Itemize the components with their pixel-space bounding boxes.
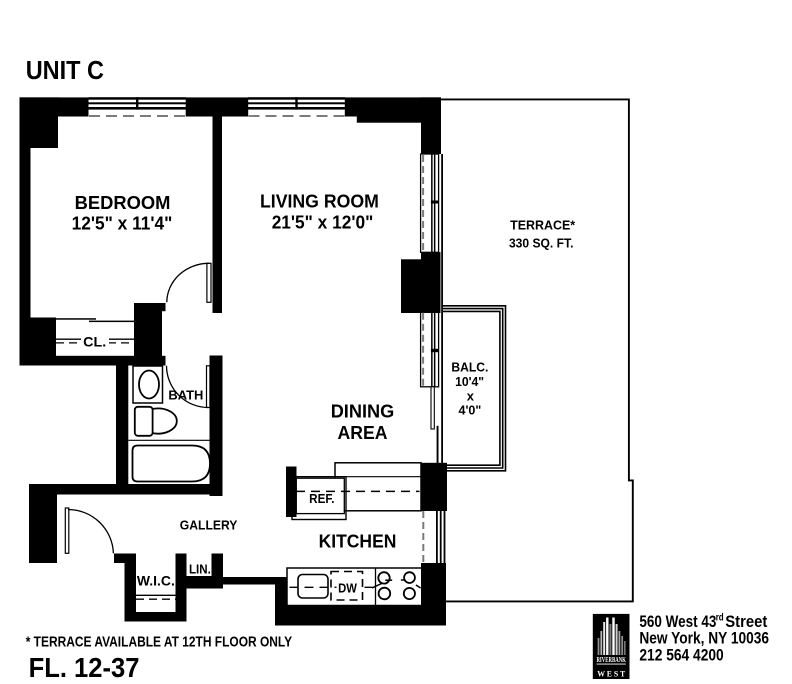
svg-text:FL. 12-37: FL. 12-37 — [29, 652, 140, 683]
svg-text:AREA: AREA — [338, 423, 388, 443]
svg-text:W E S T: W E S T — [597, 669, 625, 678]
svg-text:10'4": 10'4" — [455, 374, 484, 389]
svg-text:REF.: REF. — [309, 492, 334, 506]
svg-text:KITCHEN: KITCHEN — [319, 532, 397, 552]
svg-text:4'0": 4'0" — [459, 403, 482, 418]
svg-text:CL.: CL. — [83, 334, 106, 349]
svg-text:GALLERY: GALLERY — [180, 518, 238, 533]
svg-text:LIVING ROOM: LIVING ROOM — [260, 192, 379, 212]
svg-text:x: x — [467, 388, 475, 403]
svg-text:330 SQ. FT.: 330 SQ. FT. — [509, 236, 574, 251]
svg-text:12'5" x 11'4": 12'5" x 11'4" — [72, 214, 173, 234]
svg-text:21'5" x 12'0": 21'5" x 12'0" — [272, 213, 374, 233]
svg-text:W.I.C.: W.I.C. — [137, 573, 175, 588]
svg-text:DW: DW — [338, 581, 357, 596]
svg-text:BATH: BATH — [168, 388, 203, 403]
svg-text:UNIT C: UNIT C — [26, 57, 104, 85]
svg-text:RIVERBANK: RIVERBANK — [596, 655, 626, 664]
svg-text:TERRACE*: TERRACE* — [510, 217, 575, 232]
svg-text:BEDROOM: BEDROOM — [75, 193, 171, 213]
svg-text:212 564 4200: 212 564 4200 — [639, 646, 723, 665]
svg-text:BALC.: BALC. — [451, 360, 488, 375]
svg-text:LIN.: LIN. — [189, 562, 211, 577]
svg-text:* TERRACE AVAILABLE AT 12TH FL: * TERRACE AVAILABLE AT 12TH FLOOR ONLY — [26, 635, 293, 651]
svg-text:rd: rd — [716, 612, 724, 623]
svg-text:DINING: DINING — [331, 401, 395, 421]
